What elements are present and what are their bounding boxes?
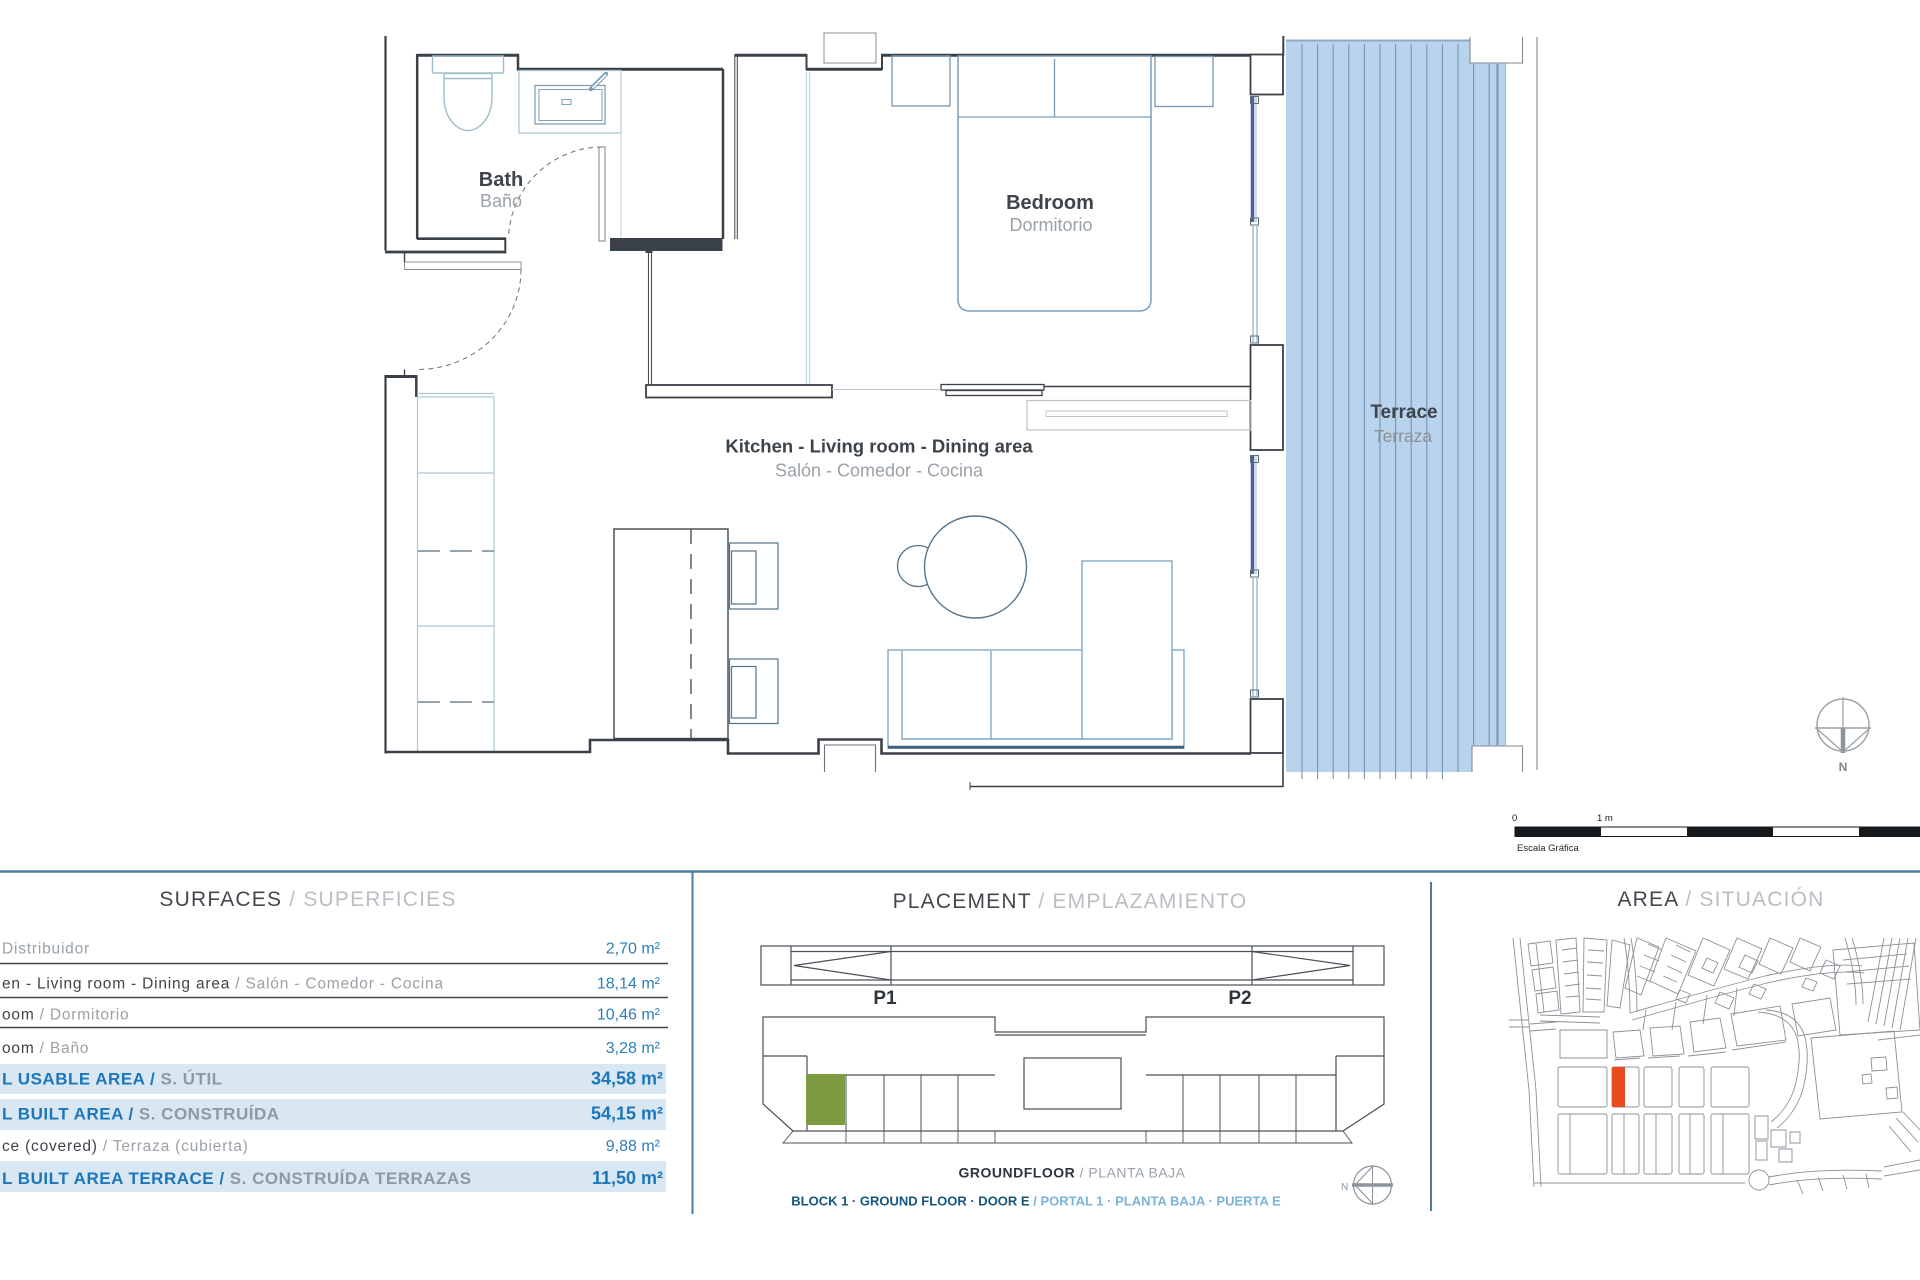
svg-text:N: N <box>1341 1182 1348 1193</box>
svg-text:SURFACES / SUPERFICIES: SURFACES / SUPERFICIES <box>159 888 456 911</box>
svg-text:L BUILT AREA / S. CONSTRUÍDA: L BUILT AREA / S. CONSTRUÍDA <box>2 1105 280 1124</box>
svg-text:PLACEMENT / EMPLAZAMIENTO: PLACEMENT / EMPLAZAMIENTO <box>893 890 1248 913</box>
svg-text:18,14 m²: 18,14 m² <box>597 976 661 993</box>
svg-text:AREA / SITUACIÓN: AREA / SITUACIÓN <box>1617 888 1824 911</box>
svg-text:11,50 m²: 11,50 m² <box>592 1168 663 1188</box>
svg-text:3,28 m²: 3,28 m² <box>606 1040 661 1057</box>
svg-text:BLOCK 1 · GROUND FLOOR · DOOR: BLOCK 1 · GROUND FLOOR · DOOR E / PORTAL… <box>791 1194 1281 1209</box>
svg-text:Baño: Baño <box>480 191 522 211</box>
svg-text:1 m: 1 m <box>1597 813 1613 824</box>
svg-text:L USABLE AREA / S. ÚTIL: L USABLE AREA / S. ÚTIL <box>2 1070 223 1089</box>
svg-text:Distribuidor: Distribuidor <box>2 941 90 958</box>
svg-text:Terrace: Terrace <box>1370 402 1437 423</box>
svg-text:0: 0 <box>1512 813 1517 824</box>
svg-text:Bedroom: Bedroom <box>1006 192 1094 214</box>
svg-text:54,15 m²: 54,15 m² <box>591 1104 663 1124</box>
svg-text:ce (covered) / Terraza (cubier: ce (covered) / Terraza (cubierta) <box>2 1138 249 1155</box>
svg-text:Dormitorio: Dormitorio <box>1009 215 1092 235</box>
svg-text:GROUNDFLOOR / PLANTA BAJA: GROUNDFLOOR / PLANTA BAJA <box>959 1165 1186 1181</box>
svg-text:Salón - Comedor - Cocina: Salón - Comedor - Cocina <box>775 461 984 481</box>
svg-text:P2: P2 <box>1228 988 1251 1009</box>
svg-text:N: N <box>1839 760 1848 774</box>
svg-text:Escala Gráfica: Escala Gráfica <box>1517 843 1579 854</box>
svg-text:34,58 m²: 34,58 m² <box>591 1069 663 1089</box>
svg-text:10,46 m²: 10,46 m² <box>597 1007 661 1024</box>
svg-text:en - Living room - Dining area: en - Living room - Dining area / Salón -… <box>2 976 444 993</box>
svg-text:L BUILT AREA TERRACE / S. CONS: L BUILT AREA TERRACE / S. CONSTRUÍDA TER… <box>2 1169 472 1188</box>
svg-text:oom / Baño: oom / Baño <box>2 1040 89 1057</box>
svg-text:Bath: Bath <box>479 169 523 191</box>
svg-text:Terraza: Terraza <box>1374 426 1433 446</box>
svg-text:Kitchen - Living room - Dining: Kitchen - Living room - Dining area <box>725 436 1033 457</box>
svg-text:oom / Dormitorio: oom / Dormitorio <box>2 1007 129 1024</box>
svg-text:2,70 m²: 2,70 m² <box>606 941 661 958</box>
svg-text:P1: P1 <box>873 988 897 1009</box>
svg-text:9,88 m²: 9,88 m² <box>606 1138 661 1155</box>
